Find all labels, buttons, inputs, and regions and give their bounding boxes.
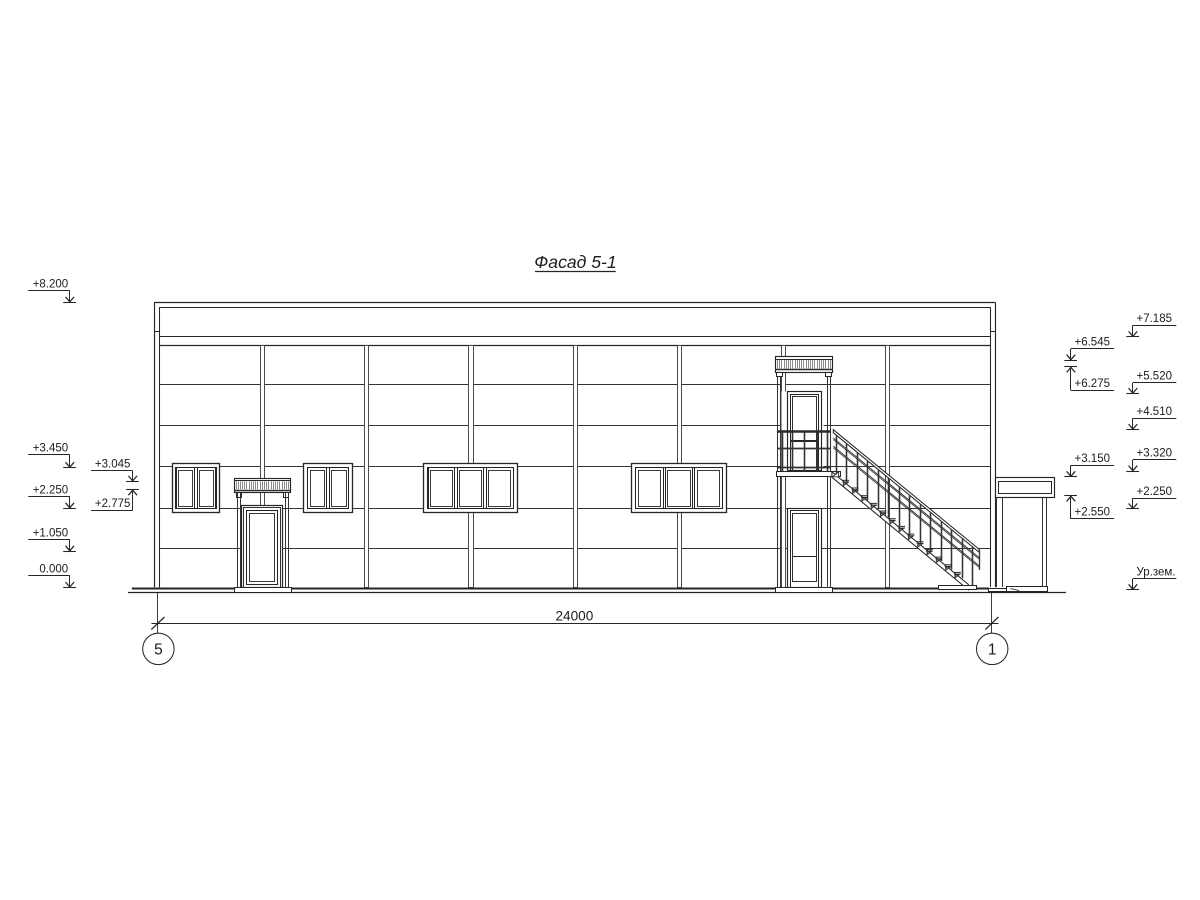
svg-text:+3.450: +3.450 [33,442,69,454]
svg-text:+8.200: +8.200 [33,279,69,291]
svg-text:24000: 24000 [555,608,593,623]
svg-text:+2.250: +2.250 [33,484,69,496]
svg-text:+6.275: +6.275 [1075,378,1111,390]
svg-text:Фасад 5-1: Фасад 5-1 [534,252,616,272]
svg-text:+6.545: +6.545 [1075,337,1111,349]
svg-text:+2.550: +2.550 [1075,507,1111,519]
svg-text:+5.520: +5.520 [1137,371,1173,383]
svg-text:+2.250: +2.250 [1137,486,1173,498]
svg-text:+3.150: +3.150 [1075,453,1111,465]
svg-text:+4.510: +4.510 [1137,406,1173,418]
svg-text:+1.050: +1.050 [33,528,69,540]
svg-text:+3.320: +3.320 [1137,448,1173,460]
svg-text:5: 5 [154,641,163,658]
svg-text:+3.045: +3.045 [95,459,131,471]
svg-text:+7.185: +7.185 [1137,313,1173,325]
svg-text:+2.775: +2.775 [95,498,131,510]
svg-text:1: 1 [988,641,997,658]
svg-text:Ур.зем.: Ур.зем. [1137,567,1176,579]
svg-text:0.000: 0.000 [39,564,68,576]
